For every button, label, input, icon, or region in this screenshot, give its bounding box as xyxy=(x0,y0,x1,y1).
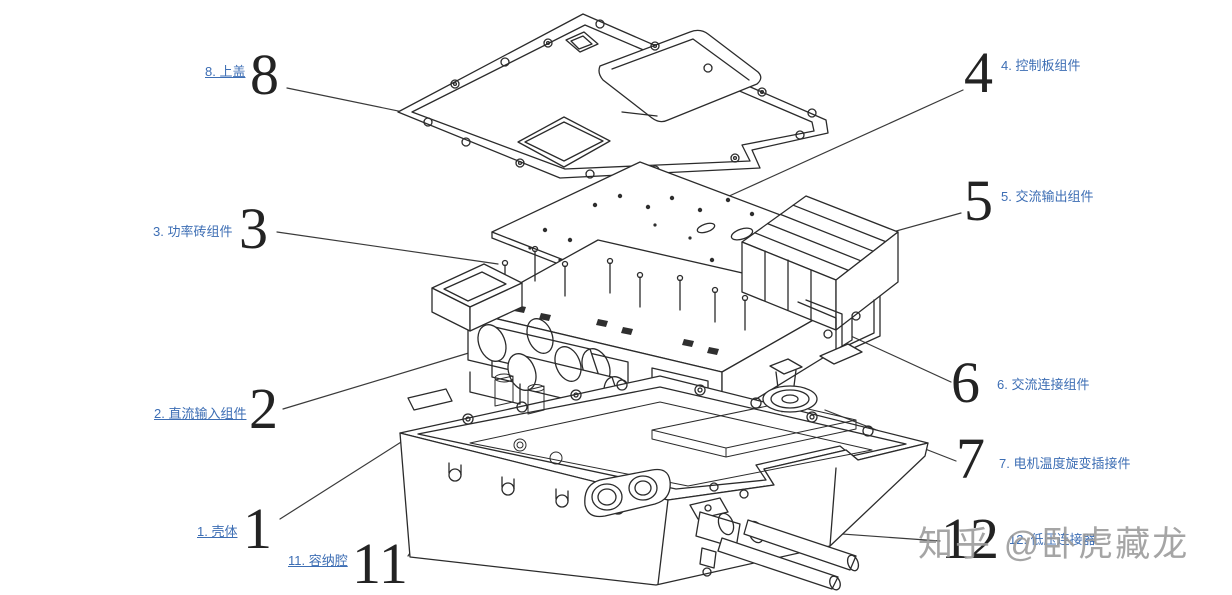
part-label-ac-connection: 6. 交流连接组件 xyxy=(997,374,1089,393)
top-cover-part xyxy=(398,14,828,178)
part-number-11: 11 xyxy=(352,535,408,593)
part-label-top-cover: 8. 上盖 xyxy=(205,61,245,80)
part-number-5: 5 xyxy=(964,172,993,230)
part-label-ac-output: 5. 交流输出组件 xyxy=(1001,186,1093,205)
exploded-view-drawing xyxy=(0,0,1232,595)
part-label-housing: 1. 壳体 xyxy=(197,521,237,540)
part-number-2: 2 xyxy=(249,380,278,438)
part-number-4: 4 xyxy=(964,44,993,102)
part-number-1: 1 xyxy=(243,500,272,558)
part-label-cavity: 11. 容纳腔 xyxy=(288,550,348,569)
part-number-6: 6 xyxy=(951,354,980,412)
part-number-7: 7 xyxy=(956,430,985,488)
part-label-control-board: 4. 控制板组件 xyxy=(1001,55,1080,74)
part-label-resolver-plug: 7. 电机温度旋变插接件 xyxy=(999,453,1130,472)
part-number-3: 3 xyxy=(239,200,268,258)
figure-canvas: 8 4 5 3 6 2 7 1 11 12 8. 上盖 4. 控制板组件 5. … xyxy=(0,0,1232,595)
part-number-8: 8 xyxy=(250,46,279,104)
part-label-power-brick: 3. 功率砖组件 xyxy=(153,221,232,240)
zhihu-watermark: 知乎 @卧虎藏龙 xyxy=(918,516,1189,567)
part-label-dc-input: 2. 直流输入组件 xyxy=(154,403,246,422)
